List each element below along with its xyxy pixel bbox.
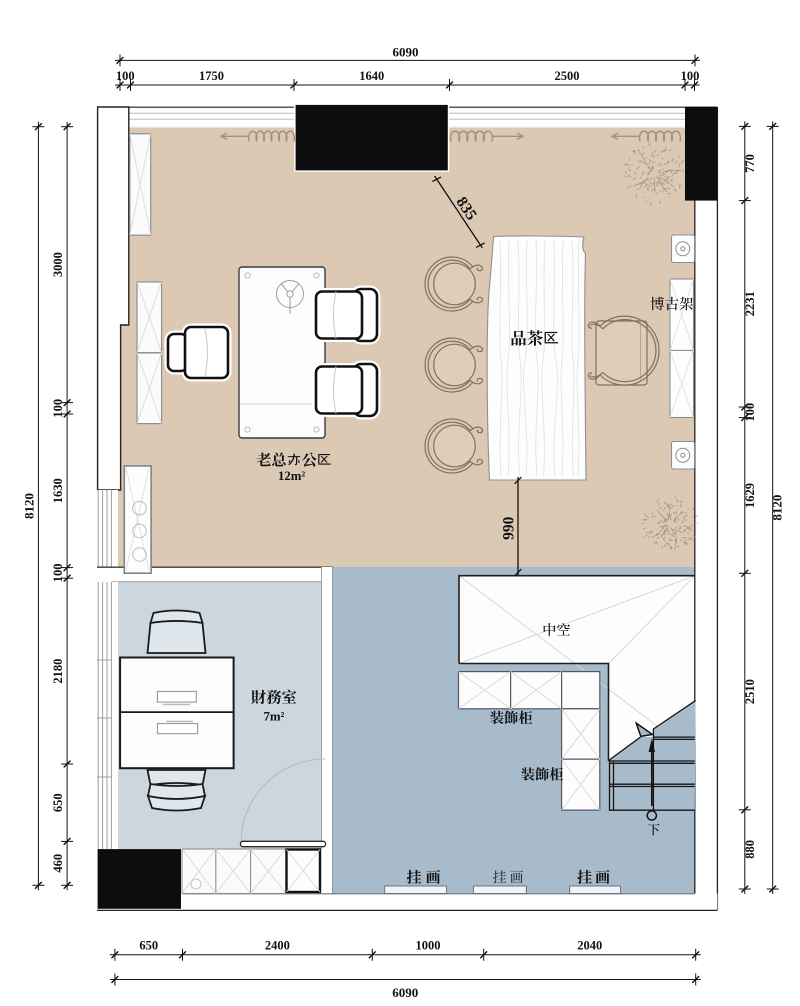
svg-text:2510: 2510	[743, 679, 757, 704]
svg-text:12m²: 12m²	[278, 469, 305, 483]
svg-text:2400: 2400	[265, 939, 290, 953]
svg-text:100: 100	[51, 399, 65, 418]
svg-text:1640: 1640	[359, 69, 384, 83]
svg-text:880: 880	[743, 840, 757, 859]
svg-text:2231: 2231	[743, 291, 757, 316]
svg-text:3000: 3000	[51, 252, 65, 277]
svg-text:2180: 2180	[51, 659, 65, 684]
svg-text:2500: 2500	[555, 69, 580, 83]
svg-text:6090: 6090	[393, 45, 419, 60]
svg-text:1629: 1629	[743, 483, 757, 508]
svg-text:6090: 6090	[392, 985, 418, 1000]
svg-text:100: 100	[681, 69, 700, 83]
svg-text:8120: 8120	[770, 495, 785, 521]
svg-text:7m²: 7m²	[263, 709, 284, 723]
svg-text:650: 650	[139, 939, 158, 953]
svg-text:8120: 8120	[21, 493, 36, 519]
svg-text:1750: 1750	[199, 69, 224, 83]
svg-text:770: 770	[743, 154, 757, 173]
svg-text:100: 100	[743, 403, 757, 422]
svg-text:990: 990	[501, 516, 518, 540]
svg-text:1630: 1630	[51, 478, 65, 503]
svg-text:650: 650	[51, 793, 65, 812]
svg-text:100: 100	[116, 69, 135, 83]
svg-text:1000: 1000	[416, 939, 441, 953]
svg-text:460: 460	[51, 854, 65, 873]
svg-text:2040: 2040	[577, 939, 602, 953]
svg-text:100: 100	[51, 564, 65, 583]
